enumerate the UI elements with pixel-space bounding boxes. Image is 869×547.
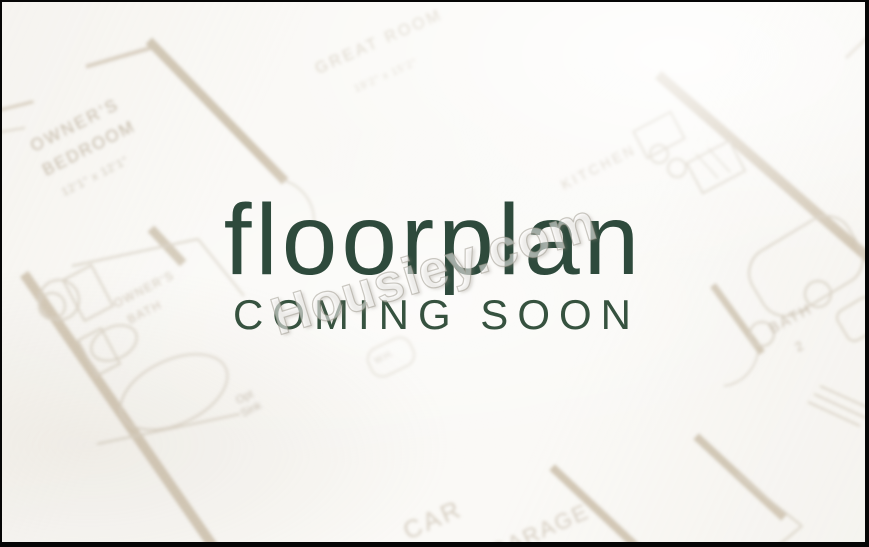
label-water-heater: W.H. — [372, 348, 394, 366]
label-bath-2: 2 — [792, 338, 805, 355]
placeholder-image-frame: OWNER'S BEDROOM 12'1" x 12'1" GREAT ROOM… — [0, 0, 869, 547]
label-great-room-dims: 19'2" x 15'2" — [353, 57, 419, 95]
label-garage: GARAGE — [486, 499, 593, 547]
label-garage: CAR — [399, 495, 467, 546]
label-great-room: GREAT ROOM — [313, 6, 446, 78]
